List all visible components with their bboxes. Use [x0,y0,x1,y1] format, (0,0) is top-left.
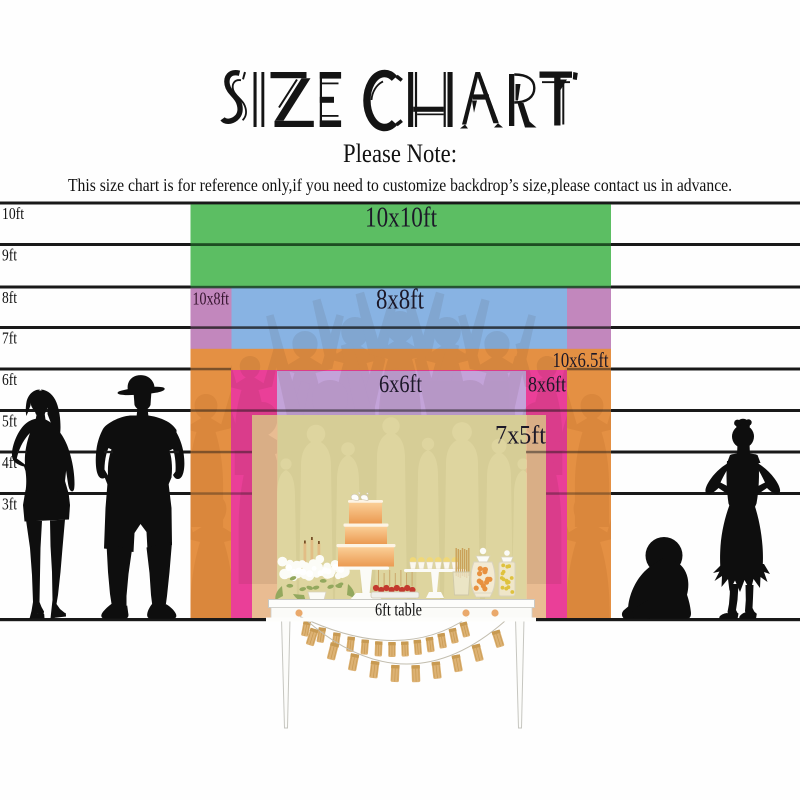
svg-text:9ft: 9ft [2,246,17,265]
svg-text:10x8ft: 10x8ft [193,289,230,309]
svg-text:10ft: 10ft [2,204,24,223]
svg-text:This size chart is for referen: This size chart is for reference only,if… [68,175,732,195]
svg-text:6ft table: 6ft table [375,600,422,620]
svg-text:7ft: 7ft [2,329,17,348]
svg-text:10x6.5ft: 10x6.5ft [553,348,609,372]
svg-text:8ft: 8ft [2,288,17,307]
svg-text:5ft: 5ft [2,412,17,431]
svg-text:10x10ft: 10x10ft [365,202,437,234]
svg-text:8x8ft: 8x8ft [376,285,424,316]
svg-text:8x6ft: 8x6ft [528,372,566,397]
svg-text:3ft: 3ft [2,495,17,514]
svg-text:6x6ft: 6x6ft [379,371,422,398]
svg-text:6ft: 6ft [2,370,17,389]
svg-text:Please Note:: Please Note: [343,139,457,168]
